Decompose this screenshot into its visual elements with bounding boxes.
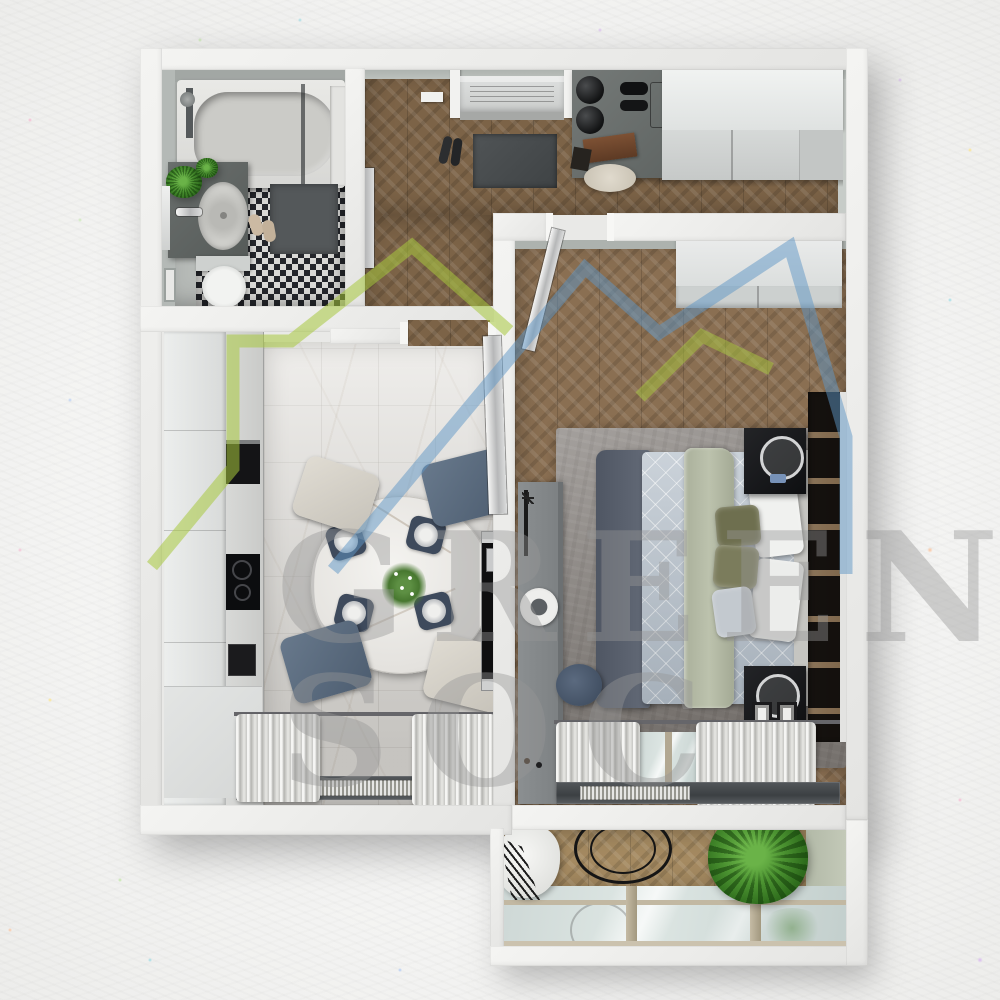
floor-plan-render: GREEN SOC xyxy=(0,0,1000,1000)
desk-decor-dark xyxy=(570,147,592,172)
oven xyxy=(226,440,260,484)
hob-burner xyxy=(232,560,252,580)
wardrobe-shadow xyxy=(662,180,843,187)
record-player xyxy=(520,588,558,626)
glazing-mullion xyxy=(626,886,637,946)
olive-pillow xyxy=(714,504,761,548)
glazing-transom xyxy=(504,900,848,905)
living-curtains-right xyxy=(412,714,496,806)
toilet-bowl xyxy=(202,266,246,308)
entrance-door-lines xyxy=(470,86,554,102)
desk-tray xyxy=(620,82,648,95)
gray-pillow xyxy=(711,585,757,638)
bedroom-door-post xyxy=(607,213,614,241)
living-curtains-left xyxy=(236,714,320,802)
balcony-wall-bottom xyxy=(490,946,862,966)
cabinet-seams xyxy=(164,430,226,431)
coffee-machine xyxy=(228,644,256,676)
dresser-knob xyxy=(536,762,542,768)
bedroom-wardrobe-seam xyxy=(757,286,759,308)
bathtub-glass-screen xyxy=(301,84,305,184)
nightstand-decor-blue xyxy=(770,474,786,483)
living-doorway-post xyxy=(400,322,408,344)
olive-pillow xyxy=(712,544,759,590)
wardrobe-seam xyxy=(731,130,733,180)
light-switch xyxy=(421,92,443,102)
desk-lamp xyxy=(576,106,604,134)
sink-faucet xyxy=(176,208,202,216)
bath-mat xyxy=(270,184,338,254)
wall-divider xyxy=(493,240,515,807)
bedroom-wardrobe-front xyxy=(676,286,842,308)
balcony-glazing xyxy=(504,886,848,946)
bathroom-wall-right xyxy=(345,68,365,306)
wall-mirror xyxy=(162,186,170,250)
hanging-chair-frame-inner xyxy=(590,824,656,874)
wall-hall-bedroom-a xyxy=(493,213,548,241)
wall-step xyxy=(330,328,408,344)
dresser-knob xyxy=(524,758,530,764)
sink-drain xyxy=(220,212,227,219)
hall-wardrobe-top xyxy=(662,68,843,130)
bedroom-radiator xyxy=(580,786,690,800)
outer-wall-left xyxy=(140,48,162,835)
living-doorway-threshold xyxy=(408,320,490,346)
entrance-threshold xyxy=(460,112,564,120)
pouf xyxy=(584,164,636,192)
hall-wardrobe-side xyxy=(800,130,843,180)
wall-bottom-bedroom xyxy=(512,805,846,830)
plate xyxy=(419,596,448,625)
doormat xyxy=(473,134,557,188)
cabinet-seams xyxy=(164,642,226,643)
dresser-fan xyxy=(522,492,534,504)
wall-hall-bedroom-b xyxy=(612,213,846,241)
outer-wall-top xyxy=(140,48,868,70)
shower-head xyxy=(180,92,195,107)
hob-burner xyxy=(234,584,251,601)
desk-tray xyxy=(620,100,648,111)
balcony-wall-right xyxy=(846,820,868,966)
wall-frames xyxy=(164,268,176,302)
flower-blooms xyxy=(390,568,418,602)
outer-wall-right xyxy=(846,48,868,820)
cabinet-seams xyxy=(164,530,226,531)
desk-lamp xyxy=(576,76,604,104)
bedroom-stool xyxy=(556,664,602,706)
bath-shelf xyxy=(330,86,345,186)
wall-bottom-living xyxy=(140,805,512,835)
fern-plant-small xyxy=(196,158,218,178)
